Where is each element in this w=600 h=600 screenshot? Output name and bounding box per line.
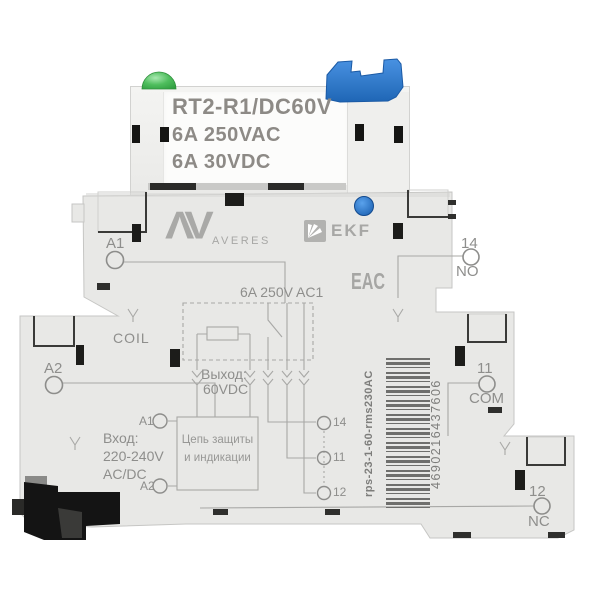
relay-model-text: RT2-R1/DC60V [172,94,332,120]
socket-top-shade [86,193,450,197]
terminal-label-nc: NC [528,513,550,530]
relay-rating-dc-text: 6A 30VDC [172,151,271,174]
averes-monogram-logo: ΛV [165,207,204,246]
terminal-label-11: 11 [477,360,493,377]
schematic-pin-11: 11 [333,450,345,464]
socket-left-tab [72,204,84,222]
eac-mark: EAC [351,270,385,296]
schematic-output-label: Выход: [201,366,247,382]
ekf-logo-icon [304,220,326,242]
averes-wordmark: AVERES [212,235,271,247]
protection-line2: и индикации [177,450,258,468]
barcode-ean-text: 4690216437606 [429,356,443,512]
terminal-label-a1: A1 [106,235,124,252]
retainer-clip [326,59,403,102]
schematic-output-value: 60VDC [203,381,248,397]
relay-rating-ac-text: 6A 250VAC [172,124,281,147]
schematic-pin-12: 12 [333,485,346,499]
test-button [355,197,374,216]
led-indicator [142,72,176,89]
schematic-pin-a2: A2 [140,479,155,493]
terminal-label-com: COM [469,390,504,407]
terminal-label-12: 12 [529,483,546,500]
terminal-label-14: 14 [461,235,478,252]
protection-line1: Цепь защиты [177,432,258,450]
barcode-sku-text: rps-23-1-60-rms230AC [363,356,375,512]
socket-body-svg [0,0,600,600]
schematic-input-voltage: 220-240V [103,448,164,464]
terminal-label-coil: COIL [113,330,150,346]
barcode [386,358,430,510]
ekf-wordmark: EKF [331,221,371,241]
schematic-pin-a1: A1 [139,414,154,428]
product-photo-relay-module: RT2-R1/DC60V 6A 250VAC 6A 30VDC ΛV AVERE… [0,0,600,600]
schematic-pin-14: 14 [333,415,346,429]
schematic-protection-box-text: Цепь защиты и индикации [177,432,258,468]
schematic-input-label: Вход: [103,430,139,446]
terminal-label-no: NO [456,263,479,280]
terminal-label-a2: A2 [44,360,62,377]
schematic-contact-rating: 6A 250V AC1 [240,284,323,300]
